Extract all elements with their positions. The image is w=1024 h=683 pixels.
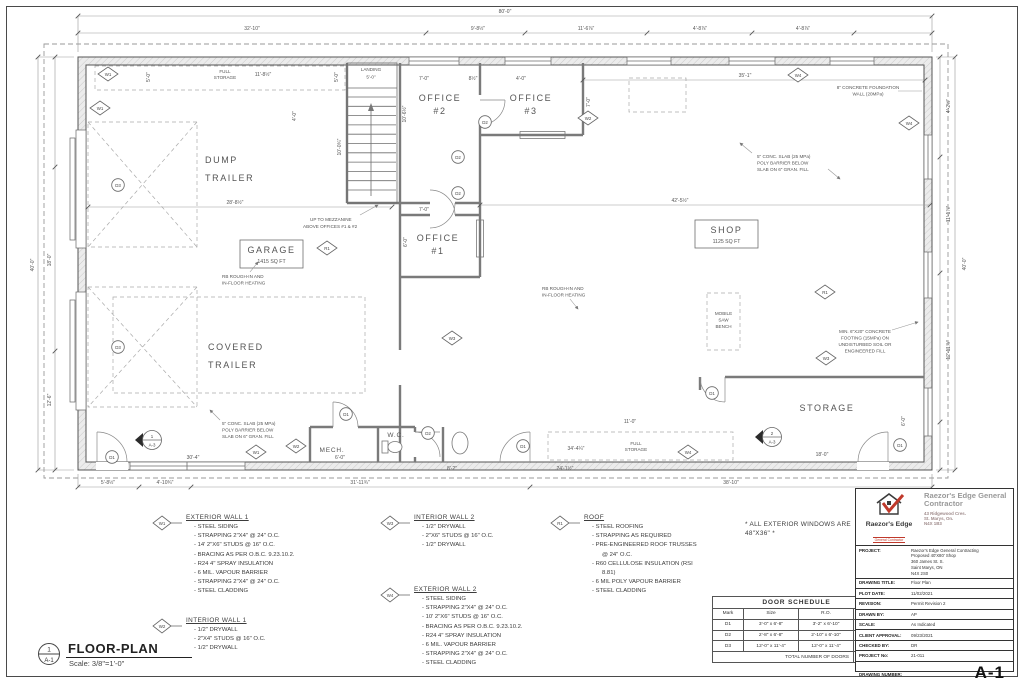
company-name: Raezor's Edge General Contractor <box>924 492 1011 509</box>
legend-item: STEEL CLADDING <box>584 587 702 596</box>
svg-text:1: 1 <box>47 647 51 654</box>
legend-item: 1/2" DRYWALL <box>414 541 494 550</box>
title-block-row: PLOT DATE:11/02/2021 <box>856 589 1013 599</box>
legend-block-exterior-wall-1: W1 EXTERIOR WALL 1STEEL SIDINGSTRAPPING … <box>148 514 363 597</box>
logo-company-name: Raezor's Edge <box>858 521 920 528</box>
legend-item: STRAPPING 2"X4" @ 24" O.C. <box>186 532 295 541</box>
legend-title: ROOF <box>584 514 702 521</box>
legend-item: STEEL CLADDING <box>186 587 295 596</box>
legend-title: INTERIOR WALL 2 <box>414 514 494 521</box>
wall-tag-w4-icon: W4 <box>376 587 410 603</box>
legend-block-roof: R1 ROOFSTEEL ROOFINGSTRAPPING AS REQUIRE… <box>546 514 706 597</box>
legend-item: 10' 2"X6" STUDS @ 16" O.C. <box>414 613 523 622</box>
svg-text:W3: W3 <box>387 521 394 526</box>
legend-item: STRAPPING AS REQUIRED <box>584 532 702 541</box>
title-block: Raezor's Edge General Contractor Raezor'… <box>855 488 1014 672</box>
legend-item: STEEL CLADDING <box>414 659 523 668</box>
view-title: 1 A-1 FLOOR-PLAN Scale: 3/8"=1'-0" <box>36 641 192 668</box>
legend-item: BRACING AS PER O.B.C. 9.23.10.2. <box>186 551 295 560</box>
title-block-row: DRAWN BY:AP <box>856 610 1013 620</box>
wall-tag-w2-icon: W2 <box>148 618 182 634</box>
legend-item: 1/2" DRYWALL <box>414 523 494 532</box>
legend-item: 2"X6" STUDS @ 16" O.C. <box>414 532 494 541</box>
company-address: 43 Ridgewood Cres. St. Marys, On. N4X 1B… <box>924 511 1011 527</box>
legend-item: STRAPPING 2"X4" @ 24" O.C. <box>414 650 523 659</box>
title-block-row: CLIENT APPROVAL:09/23/2021 <box>856 630 1013 640</box>
legend-item: 2"X4" STUDS @ 16" O.C. <box>186 635 266 644</box>
view-scale: Scale: 3/8"=1'-0" <box>66 658 192 668</box>
legend-item: 6 MIL POLY VAPOUR BARRIER <box>584 578 702 587</box>
title-block-row: PROJECT No:21-011 <box>856 651 1013 661</box>
svg-text:A-1: A-1 <box>44 658 54 664</box>
drawing-title-value: Floor Plan <box>911 580 931 586</box>
title-block-rows: PLOT DATE:11/02/2021REVISION:Permit Revi… <box>856 589 1013 662</box>
legend-item: PRE-ENGINEERED ROOF TRUSSES @ 24" O.C. <box>584 541 702 559</box>
view-reference-bubble: 1 A-1 <box>36 641 62 667</box>
legend-title: EXTERIOR WALL 1 <box>186 514 295 521</box>
exterior-windows-note: * ALL EXTERIOR WINDOWS ARE 48"X36" * <box>745 520 863 538</box>
legend-item: STEEL SIDING <box>414 595 523 604</box>
project-value: Raezor's Edge General Contracting Propos… <box>911 548 979 577</box>
legend-item: STEEL ROOFING <box>584 523 702 532</box>
wall-tag-w3-icon: W3 <box>376 515 410 531</box>
house-logo-icon <box>872 491 906 517</box>
svg-text:R1: R1 <box>557 521 563 526</box>
drawing-number-label: DRAWING NUMBER: <box>859 672 902 677</box>
title-block-branding: Raezor's Edge General Contractor Raezor'… <box>856 489 1013 546</box>
legend-item: STEEL SIDING <box>186 523 295 532</box>
drawing-title-label: DRAWING TITLE: <box>859 580 911 586</box>
drawing-sheet: MOBILE SAW BENCH <box>0 0 1024 683</box>
title-block-row: CHECKED BY:DR <box>856 641 1013 651</box>
svg-text:W4: W4 <box>387 593 394 598</box>
legend-item: 14' 2"X6" STUDS @ 16" O.C. <box>186 541 295 550</box>
drawing-number: A-1 <box>975 663 1005 683</box>
legend-item: BRACING AS PER O.B.C. 9.23.10.2. <box>414 623 523 632</box>
title-block-row: REVISION:Permit Revision 2 <box>856 599 1013 609</box>
wall-tag-w1-icon: W1 <box>148 515 182 531</box>
address-line: N4X 1B3 <box>924 521 1011 526</box>
drawing-number-section: DRAWING NUMBER: A-1 <box>856 662 1013 683</box>
legend-item: R24 4" SPRAY INSULATION <box>186 560 295 569</box>
legend-title: EXTERIOR WALL 2 <box>414 586 523 593</box>
legend-title: INTERIOR WALL 1 <box>186 617 266 624</box>
svg-text:W1: W1 <box>159 521 166 526</box>
svg-text:W2: W2 <box>159 624 166 629</box>
legend-item: R24 4" SPRAY INSULATION <box>414 632 523 641</box>
roof-tag-r1-icon: R1 <box>546 515 580 531</box>
title-block-row: SCALE:As Indicated <box>856 620 1013 630</box>
project-line: N4X 2S0 <box>911 571 979 577</box>
project-section: PROJECT: Raezor's Edge General Contracti… <box>856 546 1013 579</box>
legend-item: R60 CELLULOSE INSULATION (RSI 8.81) <box>584 560 702 578</box>
legend-block-exterior-wall-2: W4 EXTERIOR WALL 2STEEL SIDINGSTRAPPING … <box>376 586 591 669</box>
legend-item: 6 MIL. VAPOUR BARRIER <box>186 569 295 578</box>
company-logo: Raezor's Edge General Contractor <box>856 489 921 545</box>
legend-item: STRAPPING 2"X4" @ 24" O.C. <box>414 604 523 613</box>
project-label: PROJECT: <box>859 548 911 577</box>
drawing-title-section: DRAWING TITLE: Floor Plan <box>856 579 1013 589</box>
logo-company-tagline: General Contractor <box>873 537 906 543</box>
legend-item: STRAPPING 2"X4" @ 24" O.C. <box>186 578 295 587</box>
legend-item: 1/2" DRYWALL <box>186 626 266 635</box>
legend-item: 1/2" DRYWALL <box>186 644 266 653</box>
legend-item: 6 MIL. VAPOUR BARRIER <box>414 641 523 650</box>
view-title-text: FLOOR-PLAN <box>66 641 192 658</box>
